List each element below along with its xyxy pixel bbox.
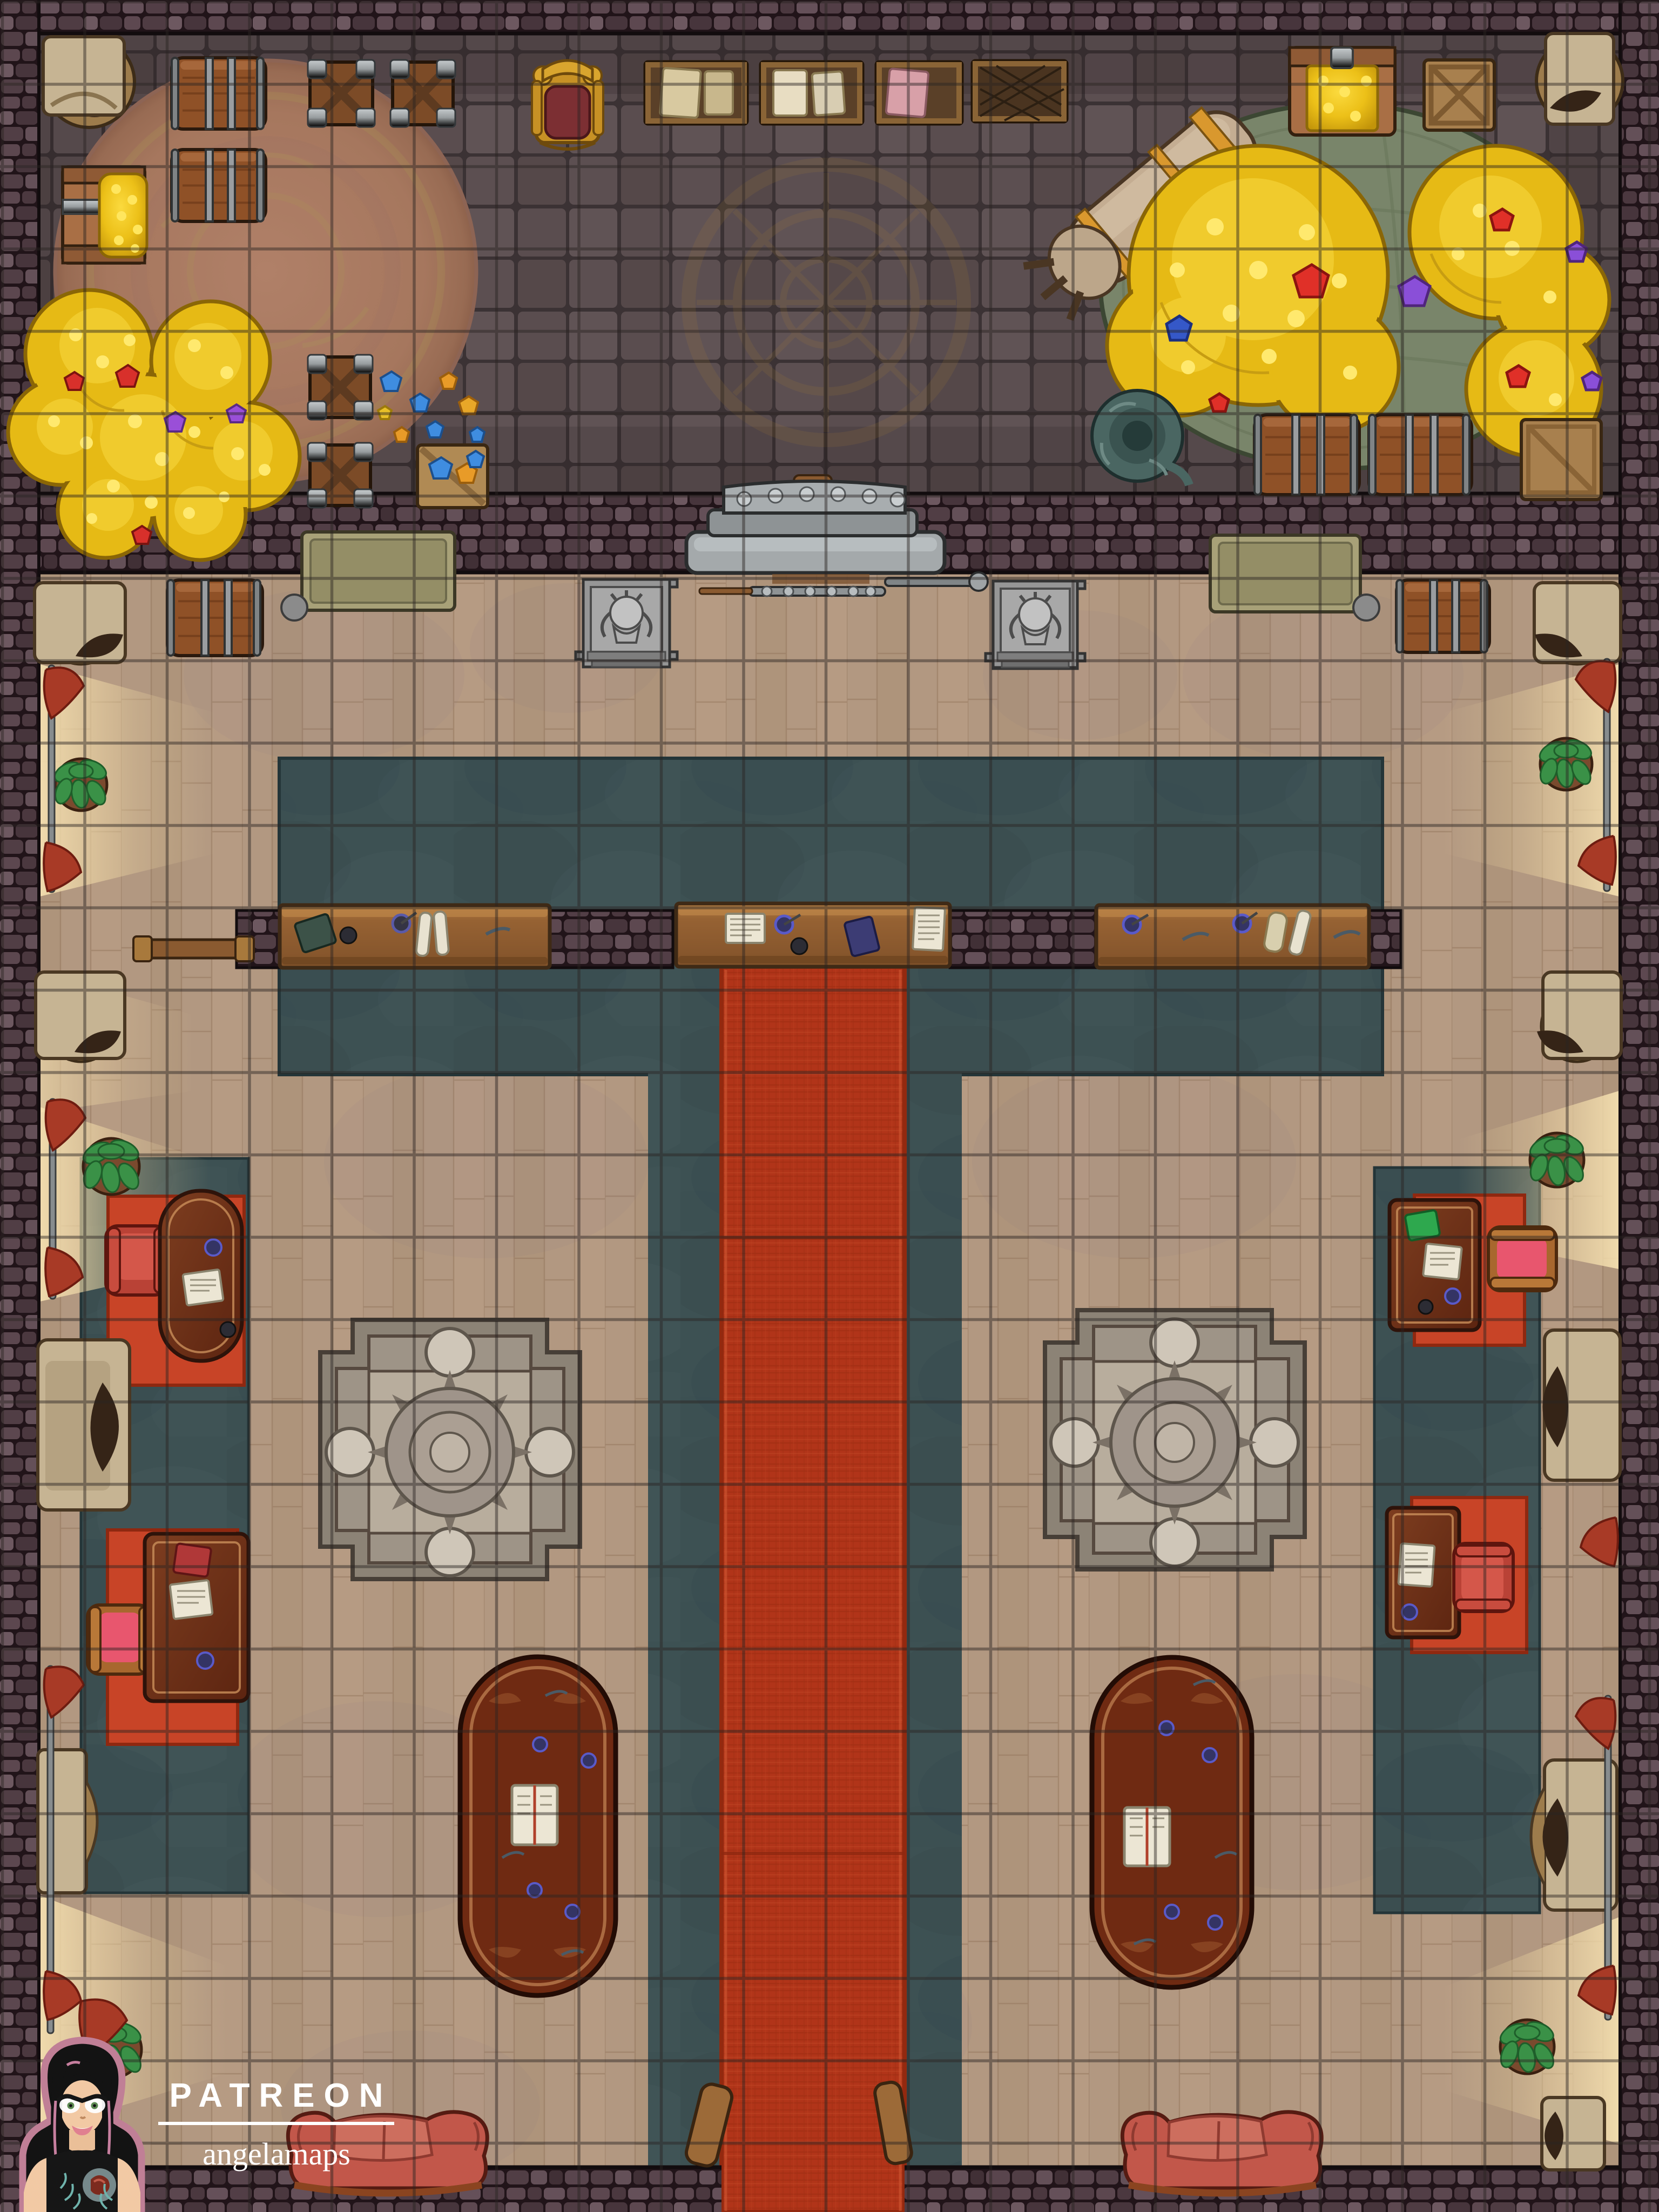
svg-text:angelamaps: angelamaps <box>203 2136 350 2171</box>
svg-text:PATREON: PATREON <box>170 2077 393 2114</box>
